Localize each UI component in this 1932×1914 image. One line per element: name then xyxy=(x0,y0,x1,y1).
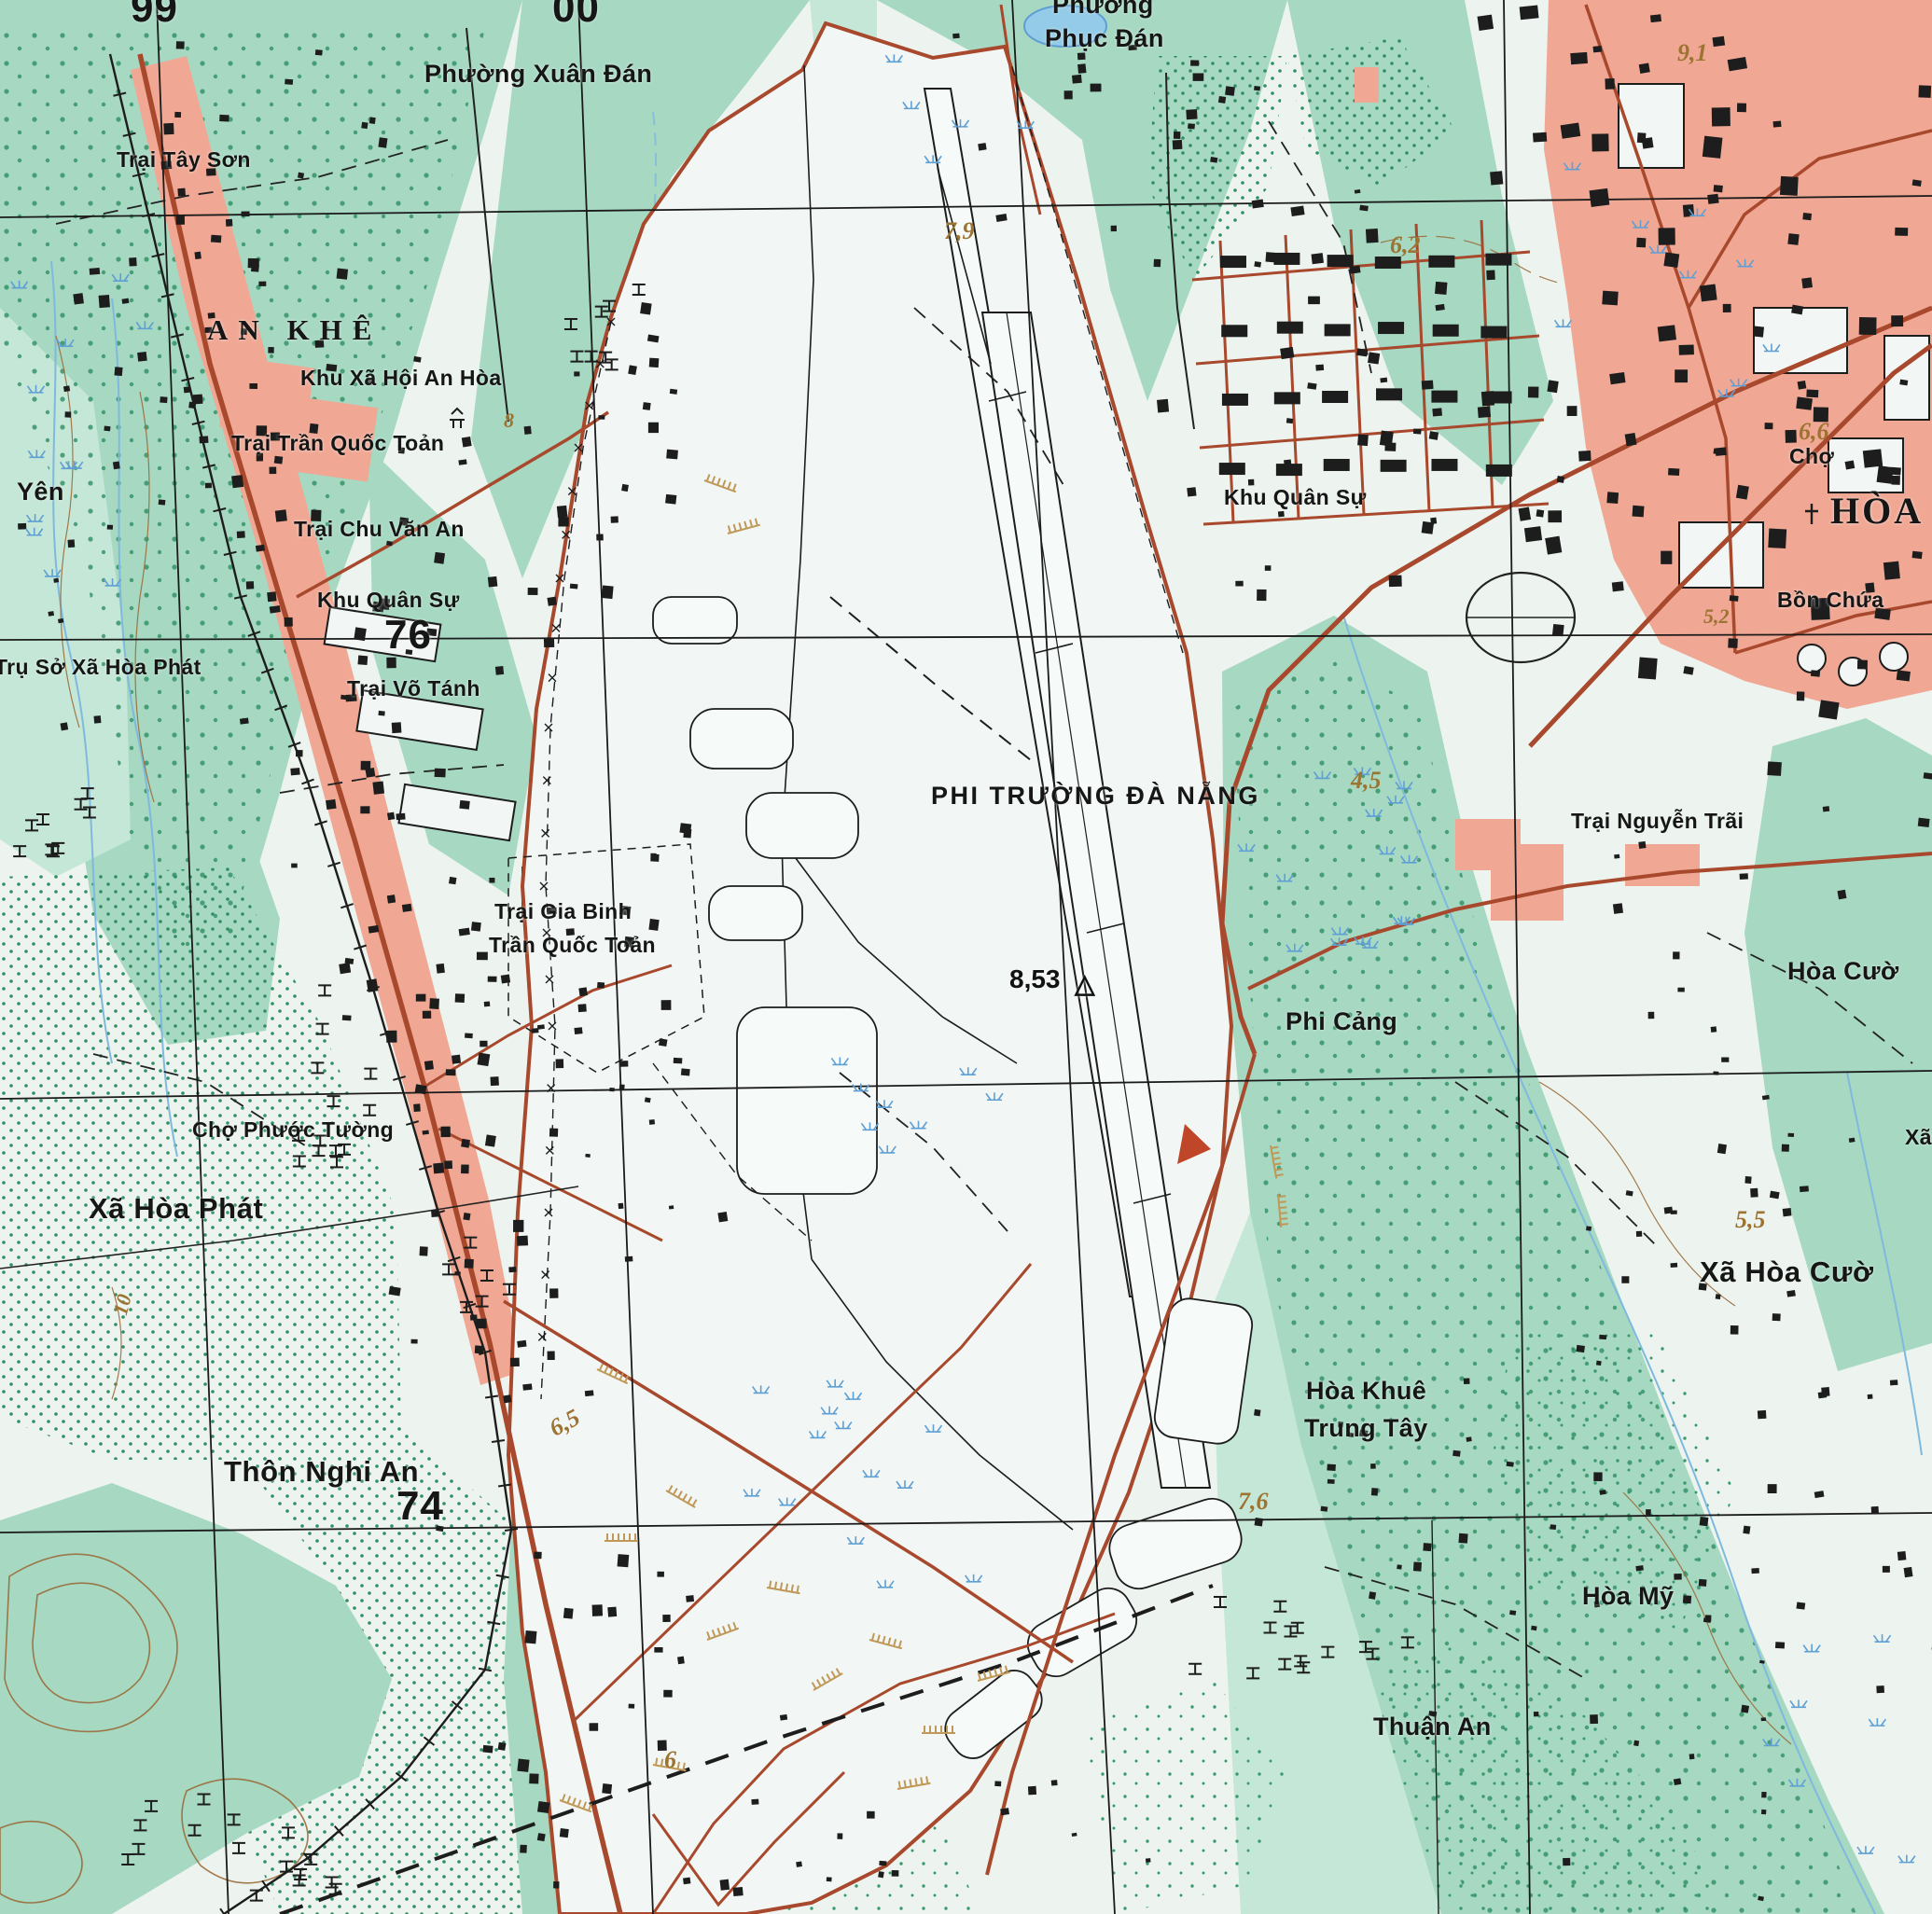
map-base-svg xyxy=(0,0,1932,1914)
topographic-map[interactable]: 9900Phường Xuân ĐánPhườngPhục ĐánTrại Tâ… xyxy=(0,0,1932,1914)
